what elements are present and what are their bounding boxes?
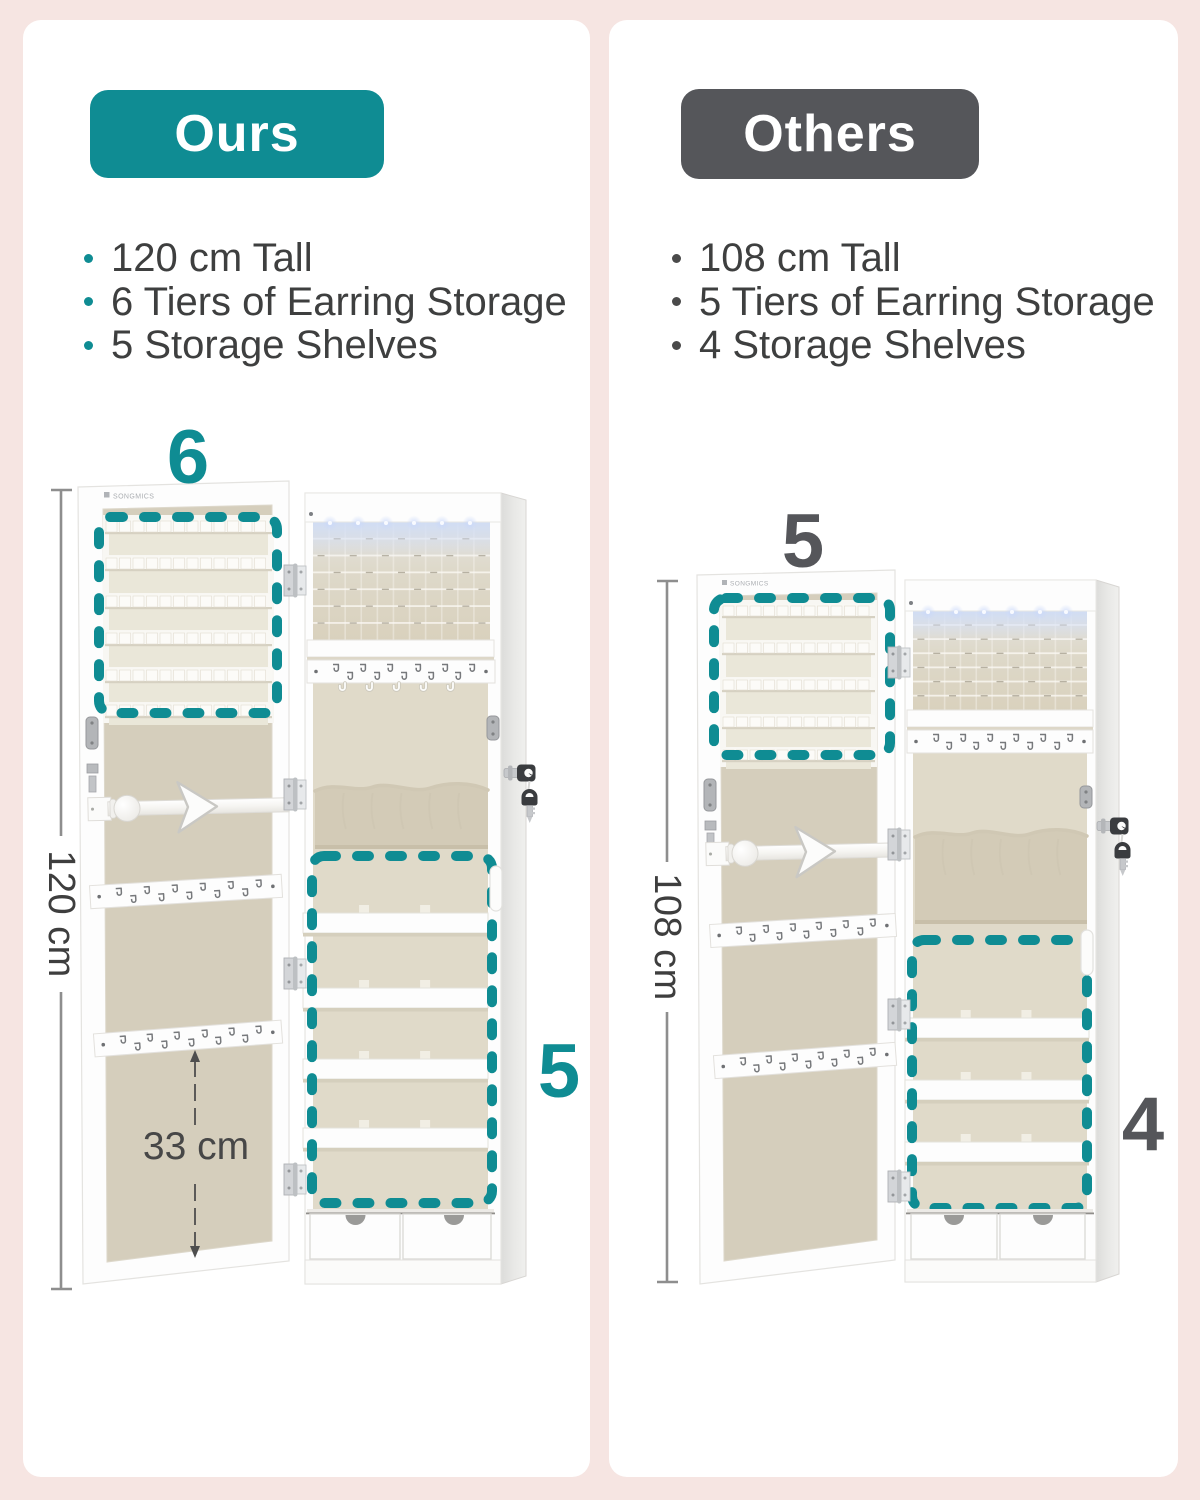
- svg-text:108 cm: 108 cm: [646, 873, 688, 1001]
- svg-text:120 cm: 120 cm: [40, 850, 82, 978]
- svg-text:5: 5: [538, 1029, 580, 1114]
- svg-text:SONGMICS: SONGMICS: [113, 494, 154, 501]
- svg-text:5: 5: [782, 499, 824, 584]
- svg-text:SONGMICS: SONGMICS: [730, 581, 769, 588]
- svg-text:6: 6: [167, 415, 209, 500]
- svg-text:4: 4: [1122, 1082, 1164, 1167]
- svg-text:33 cm: 33 cm: [143, 1125, 249, 1168]
